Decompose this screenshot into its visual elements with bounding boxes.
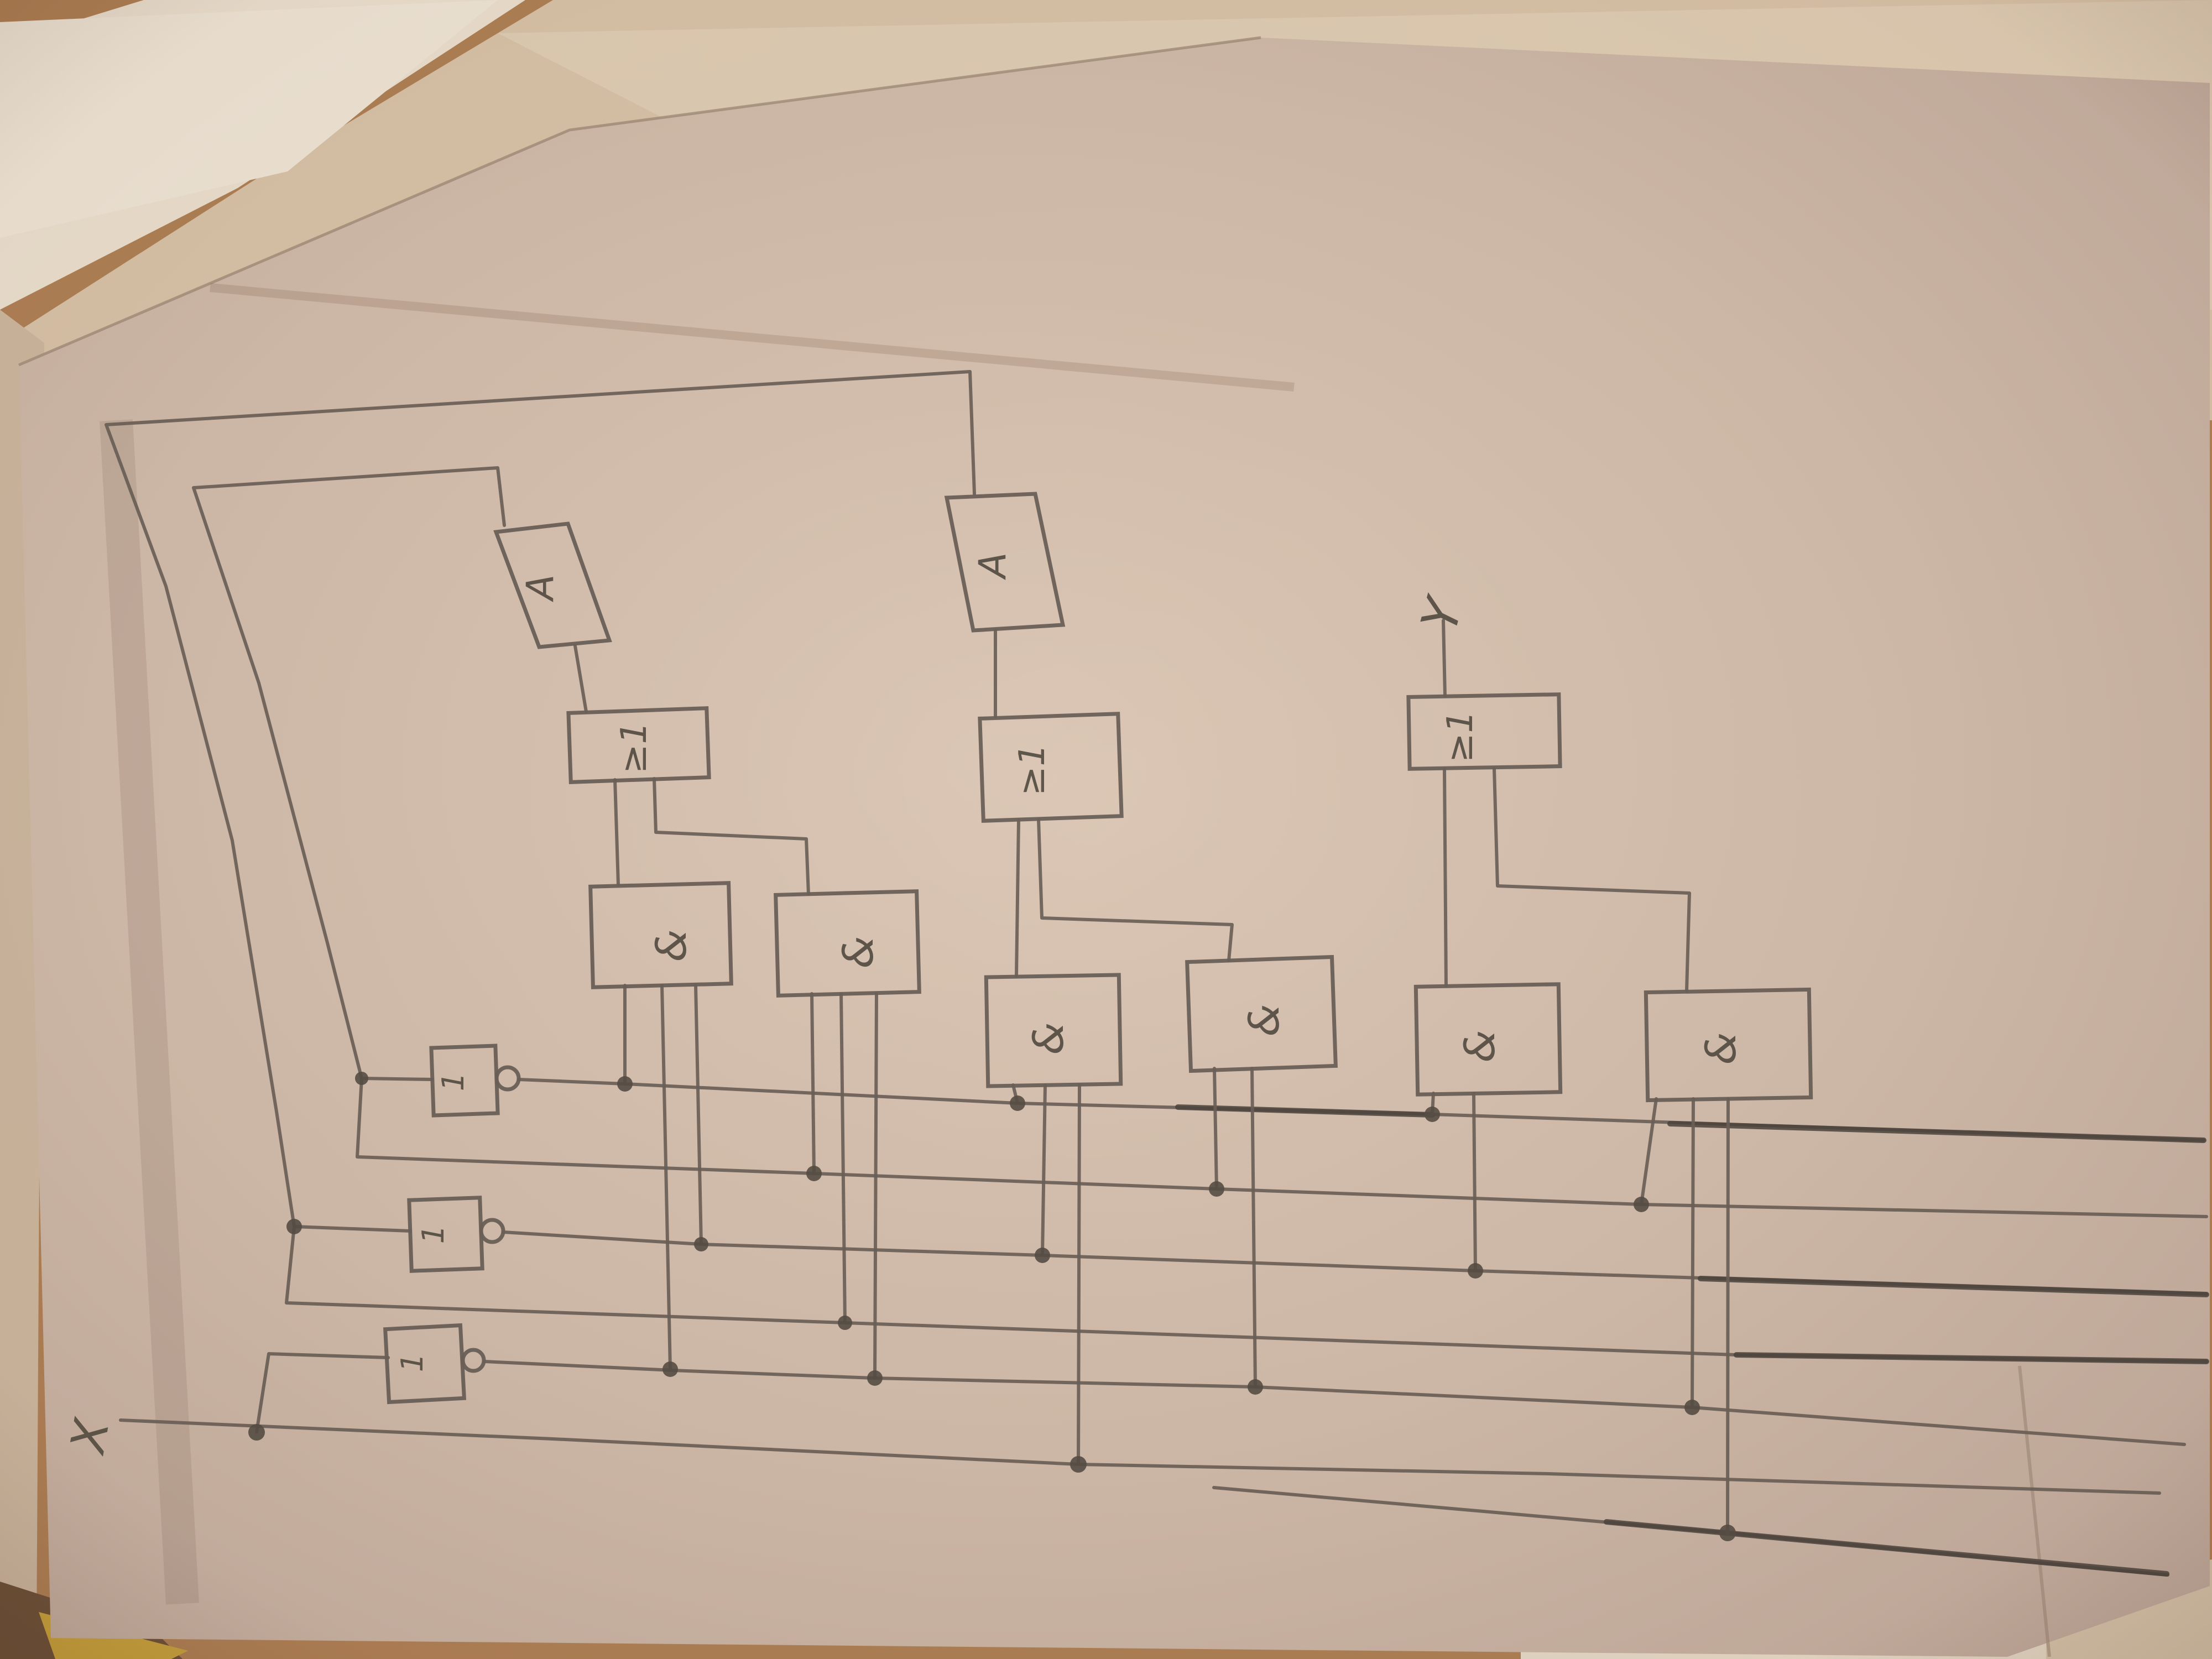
photo-vignette (0, 0, 2212, 1659)
photo-of-hand-drawn-logic-diagram: & & & & & & ≥1 ≥1 ≥1 1 1 1 A A X Y (0, 0, 2212, 1659)
